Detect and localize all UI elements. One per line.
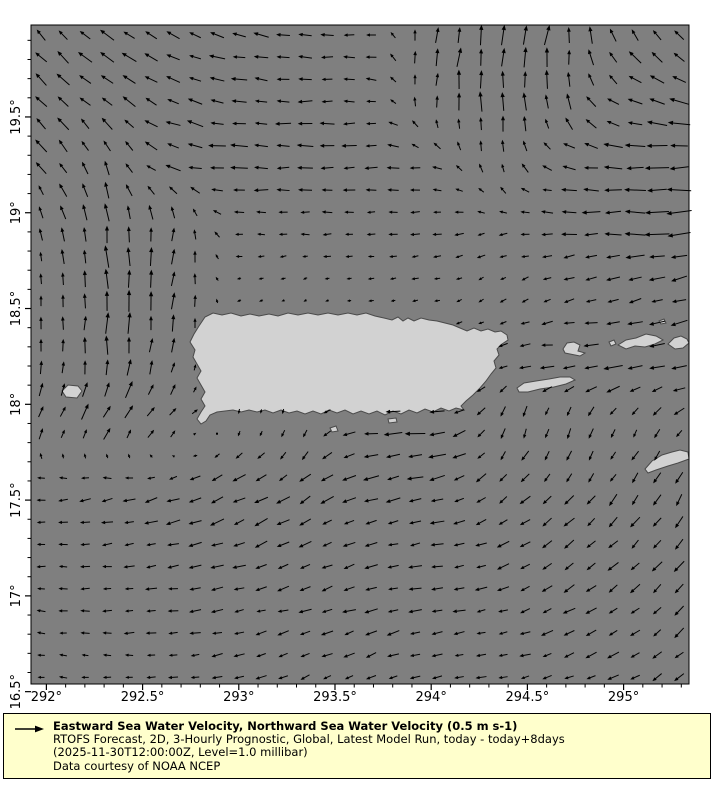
legend-line-timestamp: (2025-11-30T12:00:00Z, Level=1.0 milliba… xyxy=(53,746,704,759)
y-axis-tick-label: 19.5° xyxy=(9,99,24,134)
current-vector xyxy=(234,168,248,169)
current-vector xyxy=(481,120,482,130)
current-vector xyxy=(301,79,312,80)
current-vector xyxy=(278,123,291,124)
x-axis-tick-label: 295° xyxy=(608,690,639,705)
legend-box: Eastward Sea Water Velocity, Northward S… xyxy=(3,713,711,779)
y-axis-tick-label: 17.5° xyxy=(9,482,24,517)
current-vector xyxy=(389,411,401,412)
current-vector xyxy=(525,74,526,87)
current-vector-dot xyxy=(216,433,218,435)
current-vector xyxy=(628,190,646,191)
legend-line-courtesy: Data courtesy of NOAA NCEP xyxy=(53,760,704,773)
reference-arrow-icon xyxy=(14,723,48,735)
current-vector xyxy=(85,274,86,288)
x-axis-tick-label: 294° xyxy=(416,690,447,705)
current-vector xyxy=(257,190,269,191)
y-axis-tick-label: 18° xyxy=(9,393,24,416)
island-south-islet xyxy=(388,418,397,423)
current-vector xyxy=(587,323,597,324)
y-axis-tick-label: 16.5° xyxy=(9,674,24,709)
y-axis-tick-label: 19° xyxy=(9,201,24,224)
x-axis-tick-label: 292.5° xyxy=(121,690,165,705)
current-vector xyxy=(569,30,570,43)
current-vector xyxy=(151,273,152,288)
x-axis-tick-label: 293° xyxy=(223,690,254,705)
vector-field-map: 292°292.5°293°293.5°294°294.5°295°19.5°1… xyxy=(0,0,720,710)
current-vector xyxy=(129,230,130,243)
current-vector xyxy=(63,319,64,330)
current-vector xyxy=(279,57,289,58)
x-axis-tick-label: 293.5° xyxy=(313,690,357,705)
y-axis-tick-label: 18.5° xyxy=(9,291,24,326)
island-puerto-rico xyxy=(190,313,508,424)
x-axis-tick-label: 294.5° xyxy=(506,690,550,705)
velocity-map-figure: 292°292.5°293°293.5°294°294.5°295°19.5°1… xyxy=(0,0,720,800)
y-axis-tick-label: 17° xyxy=(9,584,24,607)
x-axis-tick-label: 292° xyxy=(31,690,62,705)
